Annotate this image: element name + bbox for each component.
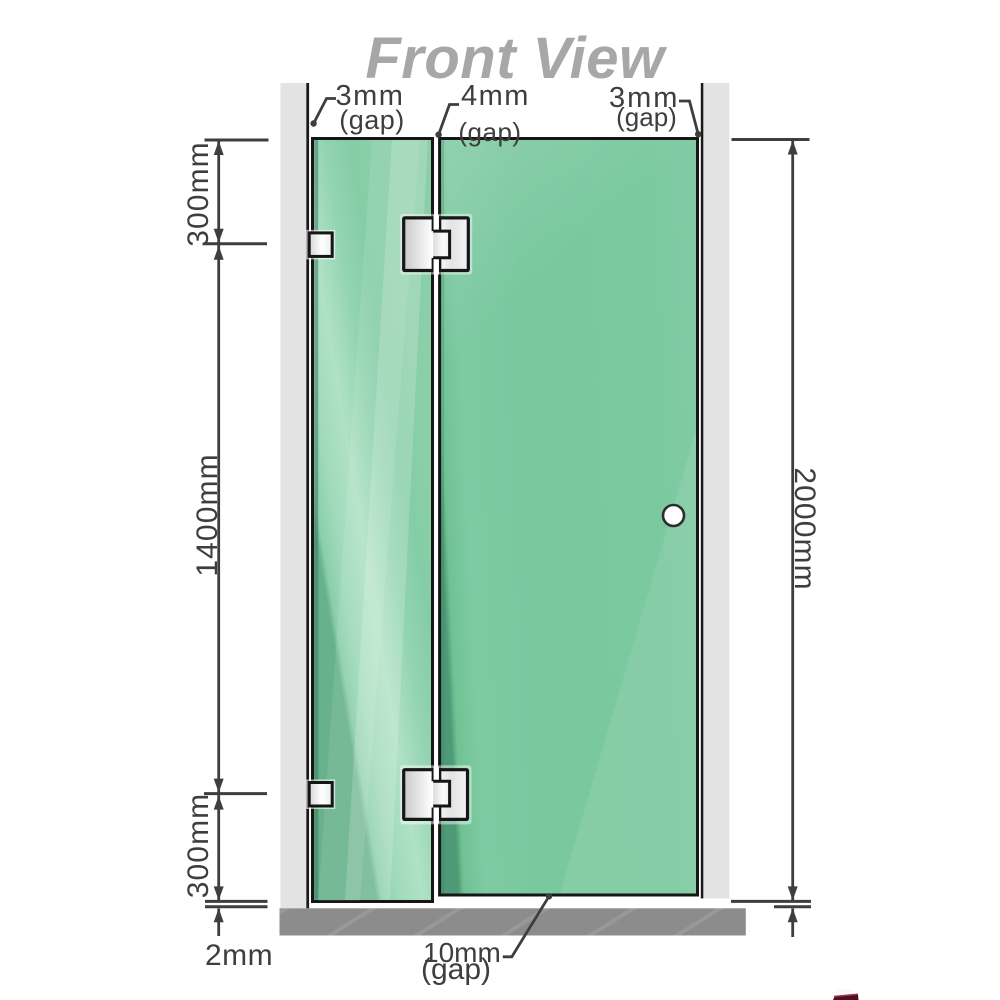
svg-text:2000mm: 2000mm [788, 467, 821, 590]
svg-text:(gap): (gap) [421, 953, 491, 986]
svg-text:(gap): (gap) [339, 105, 405, 135]
svg-text:(gap): (gap) [616, 102, 677, 132]
svg-text:300mm: 300mm [182, 793, 215, 899]
svg-text:1400mm: 1400mm [191, 453, 224, 576]
svg-text:(gap): (gap) [458, 117, 521, 147]
svg-text:2mm: 2mm [205, 939, 273, 972]
svg-text:300mm: 300mm [182, 141, 215, 247]
svg-text:4mm: 4mm [461, 80, 530, 112]
